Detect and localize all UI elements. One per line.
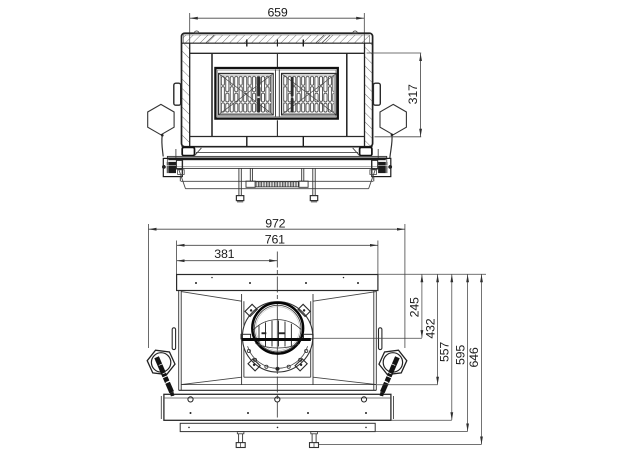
- svg-text:659: 659: [267, 5, 287, 19]
- svg-text:245: 245: [408, 297, 422, 317]
- svg-text:557: 557: [438, 342, 452, 362]
- svg-text:317: 317: [406, 84, 420, 104]
- svg-text:972: 972: [265, 216, 285, 230]
- svg-text:432: 432: [423, 318, 437, 338]
- svg-text:595: 595: [453, 345, 467, 365]
- svg-text:761: 761: [265, 232, 285, 246]
- svg-text:646: 646: [467, 347, 481, 367]
- svg-text:381: 381: [214, 247, 234, 261]
